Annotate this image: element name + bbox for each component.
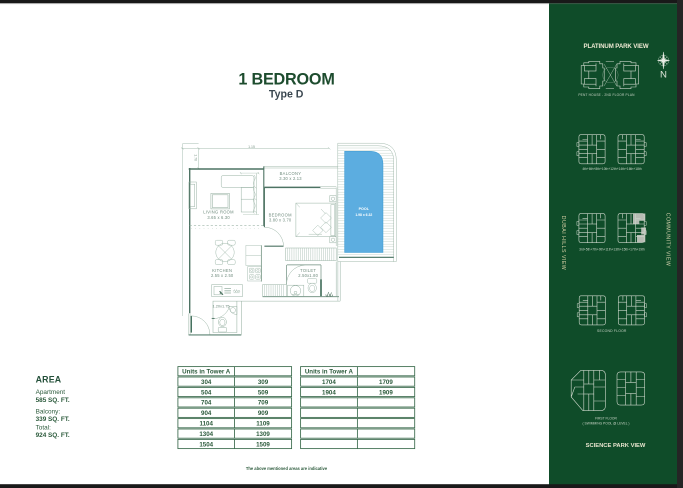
svg-text:504: 504 bbox=[201, 389, 212, 396]
svg-text:709: 709 bbox=[258, 400, 269, 407]
svg-text:1709: 1709 bbox=[379, 379, 393, 386]
svg-text:1 BEDROOM: 1 BEDROOM bbox=[238, 71, 334, 89]
svg-text:AREA: AREA bbox=[36, 374, 62, 384]
svg-text:Units in Tower A: Units in Tower A bbox=[182, 369, 231, 376]
svg-text:1504: 1504 bbox=[199, 441, 213, 448]
svg-text:1104: 1104 bbox=[199, 421, 213, 428]
svg-text:Type D: Type D bbox=[269, 88, 304, 100]
svg-text:DUBAI HILLS VIEW: DUBAI HILLS VIEW bbox=[560, 216, 566, 270]
svg-text:Apartment: Apartment bbox=[36, 389, 66, 396]
svg-text:Total:: Total: bbox=[36, 424, 51, 431]
svg-text:COMMUNITY VIEW: COMMUNITY VIEW bbox=[665, 213, 671, 267]
svg-text:1304: 1304 bbox=[199, 431, 213, 438]
svg-text:SECOND FLOOR: SECOND FLOOR bbox=[597, 329, 627, 333]
svg-text:1509: 1509 bbox=[256, 441, 270, 448]
svg-text:3rd+5th+7th+9th+11th+13th+15th: 3rd+5th+7th+9th+11th+13th+15th+17th+19th bbox=[579, 247, 645, 251]
svg-text:309: 309 bbox=[258, 379, 269, 386]
svg-text:The above mentioned areas are: The above mentioned areas are indicative bbox=[246, 466, 328, 471]
svg-text:1109: 1109 bbox=[256, 421, 270, 428]
svg-text:Balcony:: Balcony: bbox=[36, 409, 61, 416]
svg-text:3.30 x 2.13: 3.30 x 2.13 bbox=[279, 176, 302, 181]
svg-text:339 SQ. FT.: 339 SQ. FT. bbox=[36, 416, 70, 423]
svg-text:3.80 x 3.70: 3.80 x 3.70 bbox=[269, 217, 292, 222]
svg-text:N: N bbox=[660, 69, 667, 80]
svg-text:924 SQ. FT.: 924 SQ. FT. bbox=[36, 432, 70, 439]
svg-text:( SWIMMING POOL @ LEVEL ): ( SWIMMING POOL @ LEVEL ) bbox=[583, 422, 630, 426]
svg-text:704: 704 bbox=[201, 400, 212, 407]
svg-text:FIRST FLOOR: FIRST FLOOR bbox=[595, 417, 617, 421]
svg-text:4th+6th+8th+10th+12th+14th+16t: 4th+6th+8th+10th+12th+14th+16th+18th bbox=[582, 167, 641, 171]
svg-text:PENT HOUSE - 2ND FLOOR PLAN: PENT HOUSE - 2ND FLOOR PLAN bbox=[578, 93, 635, 97]
svg-text:1.70: 1.70 bbox=[194, 154, 198, 161]
svg-text:1904: 1904 bbox=[322, 389, 336, 396]
svg-text:POOL: POOL bbox=[359, 207, 370, 211]
svg-text:904: 904 bbox=[201, 410, 212, 417]
svg-text:585 SQ. FT.: 585 SQ. FT. bbox=[36, 397, 70, 404]
svg-text:1.15: 1.15 bbox=[248, 145, 255, 149]
svg-text:1909: 1909 bbox=[379, 389, 393, 396]
svg-text:2.50x1.80: 2.50x1.80 bbox=[298, 273, 318, 278]
svg-text:304: 304 bbox=[201, 379, 212, 386]
svg-text:1.98 x 6.32: 1.98 x 6.32 bbox=[355, 213, 372, 217]
svg-text:1704: 1704 bbox=[322, 379, 336, 386]
svg-text:1.20x1.75: 1.20x1.75 bbox=[212, 304, 229, 309]
svg-text:SCIENCE PARK VIEW: SCIENCE PARK VIEW bbox=[586, 443, 646, 449]
svg-text:909: 909 bbox=[258, 410, 269, 417]
svg-text:509: 509 bbox=[258, 389, 269, 396]
svg-text:PLATINUM PARK VIEW: PLATINUM PARK VIEW bbox=[583, 43, 648, 50]
svg-text:2.55 x 2.50: 2.55 x 2.50 bbox=[211, 273, 234, 278]
svg-text:3.65 x 6.30: 3.65 x 6.30 bbox=[207, 215, 230, 220]
svg-text:1309: 1309 bbox=[256, 431, 270, 438]
svg-text:Units in Tower A: Units in Tower A bbox=[305, 369, 354, 376]
